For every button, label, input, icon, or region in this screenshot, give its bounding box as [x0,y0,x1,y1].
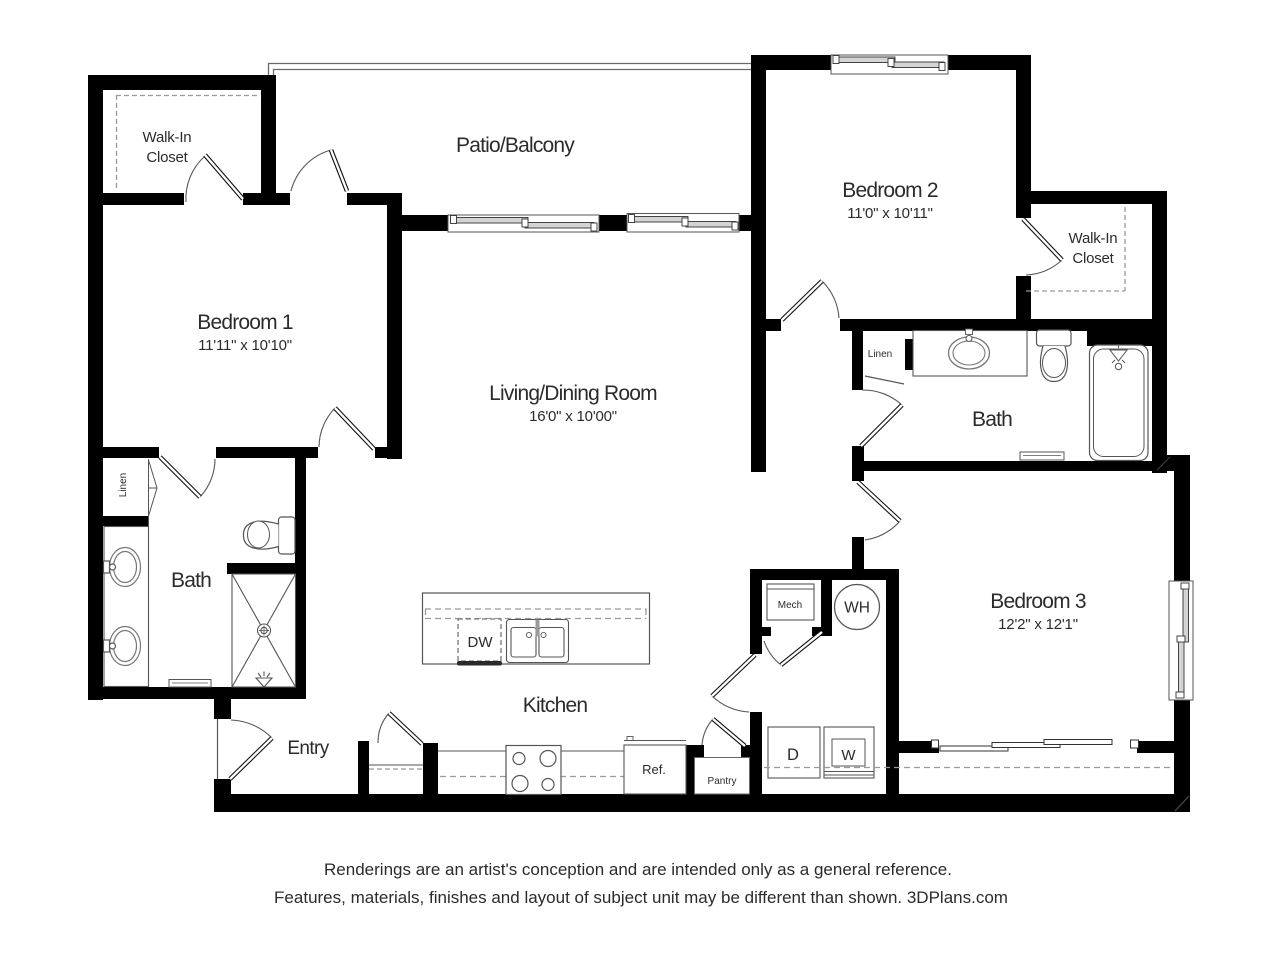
svg-text:Walk-In: Walk-In [1069,230,1118,247]
svg-text:Bath: Bath [171,569,211,592]
svg-text:Bath: Bath [972,408,1012,431]
svg-text:Pantry: Pantry [708,776,737,787]
svg-text:Living/Dining Room: Living/Dining Room [489,382,657,405]
svg-text:Ref.: Ref. [642,762,666,777]
svg-text:Entry: Entry [287,738,329,759]
svg-text:WH: WH [844,600,870,617]
svg-text:D: D [787,746,799,764]
svg-text:Renderings are an artist's con: Renderings are an artist's conception an… [324,860,952,879]
svg-text:12'2" x 12'1": 12'2" x 12'1" [998,616,1078,633]
svg-text:11'0" x 10'11": 11'0" x 10'11" [847,205,933,222]
svg-text:W: W [841,747,856,764]
svg-text:Kitchen: Kitchen [523,694,588,717]
svg-text:Closet: Closet [146,149,188,166]
svg-text:Patio/Balcony: Patio/Balcony [456,134,575,157]
svg-text:Closet: Closet [1072,250,1114,267]
svg-text:Bedroom 1: Bedroom 1 [197,311,293,334]
svg-text:Features, materials, finishes: Features, materials, finishes and layout… [274,888,1008,907]
svg-text:Mech: Mech [778,600,802,611]
svg-text:16'0" x 10'00": 16'0" x 10'00" [529,408,617,425]
svg-text:Bedroom 2: Bedroom 2 [842,179,938,202]
svg-text:Linen: Linen [118,473,129,497]
svg-text:Bedroom 3: Bedroom 3 [990,590,1086,613]
svg-text:11'11" x 10'10": 11'11" x 10'10" [198,337,292,354]
svg-text:Walk-In: Walk-In [143,129,192,146]
svg-text:Linen: Linen [868,349,892,360]
svg-text:DW: DW [468,634,494,651]
